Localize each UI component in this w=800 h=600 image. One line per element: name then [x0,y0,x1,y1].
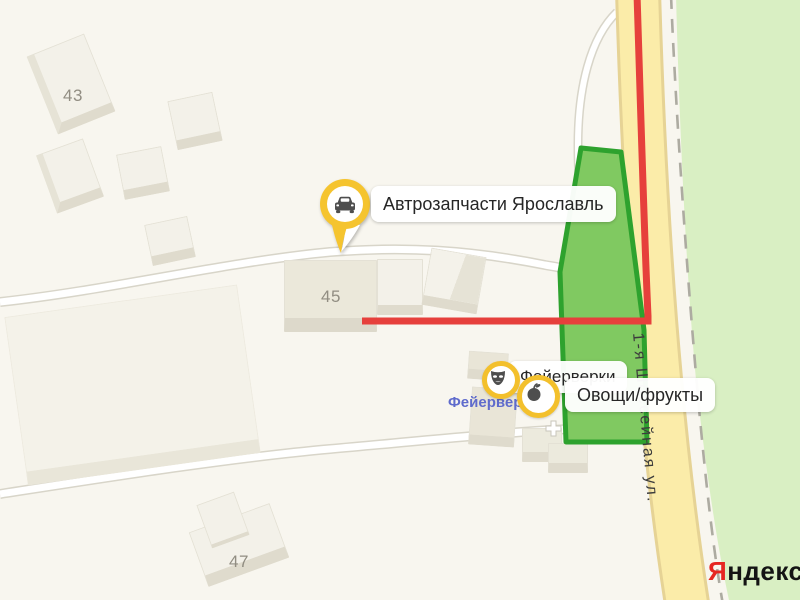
map-overlay-layer [0,0,800,600]
theater-mask-icon [487,366,509,388]
apple-icon [522,380,546,404]
poi-bubble-produce[interactable]: Овощи/фрукты [565,378,715,412]
yandex-logo-first-letter: Я [708,556,727,586]
yandex-logo-rest: ндекс [727,556,800,586]
poi-bubble-auto-parts-label: Автрозапчасти Ярославль [383,194,604,215]
map-canvas[interactable]: 43 45 47 1-я Шоссейная ул. Фейерверки Фе… [0,0,800,600]
auto-parts-map-pin[interactable] [315,172,379,262]
poi-produce-pin[interactable] [517,375,560,418]
poi-bubble-produce-label: Овощи/фрукты [577,385,703,406]
poi-fireworks-pin[interactable] [482,361,520,399]
entrance-plus-icon [546,421,561,436]
yandex-logo[interactable]: Яндекс [708,556,800,587]
poi-bubble-auto-parts[interactable]: Автрозапчасти Ярославль [371,186,616,222]
